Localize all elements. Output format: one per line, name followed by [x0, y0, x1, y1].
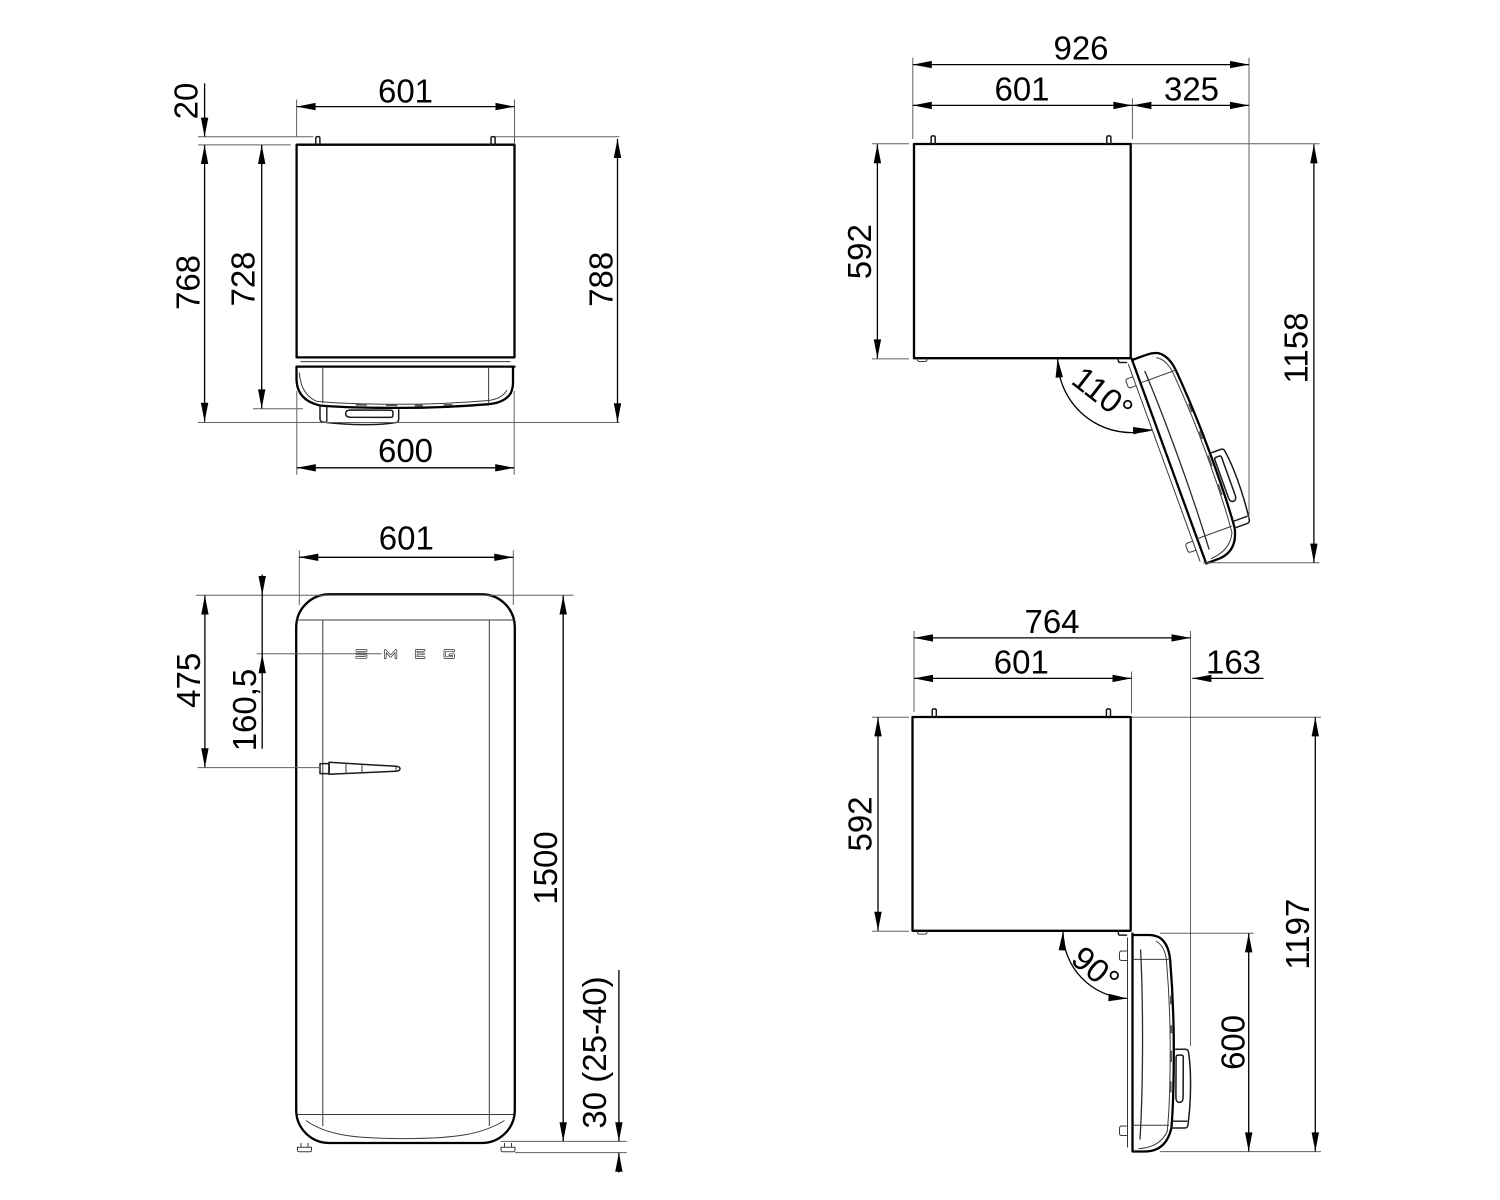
svg-text:601: 601 — [379, 520, 434, 557]
svg-text:592: 592 — [842, 796, 879, 851]
svg-text:600: 600 — [1215, 1015, 1252, 1070]
svg-text:768: 768 — [170, 255, 207, 310]
svg-text:1158: 1158 — [1278, 313, 1315, 384]
svg-text:1500: 1500 — [527, 831, 564, 904]
svg-text:20: 20 — [168, 83, 205, 120]
svg-text:160,5: 160,5 — [226, 669, 263, 752]
svg-text:325: 325 — [1164, 70, 1219, 107]
svg-text:1197: 1197 — [1279, 899, 1316, 970]
svg-text:30 (25-40): 30 (25-40) — [576, 976, 613, 1128]
svg-text:592: 592 — [841, 224, 878, 279]
svg-text:163: 163 — [1206, 643, 1261, 680]
svg-text:788: 788 — [583, 252, 620, 307]
svg-text:600: 600 — [378, 432, 433, 469]
svg-text:475: 475 — [170, 653, 207, 708]
svg-text:764: 764 — [1024, 603, 1079, 640]
svg-text:601: 601 — [994, 643, 1049, 680]
svg-text:926: 926 — [1053, 30, 1108, 67]
svg-text:728: 728 — [225, 251, 262, 306]
svg-text:601: 601 — [994, 70, 1049, 107]
svg-text:601: 601 — [378, 73, 433, 110]
